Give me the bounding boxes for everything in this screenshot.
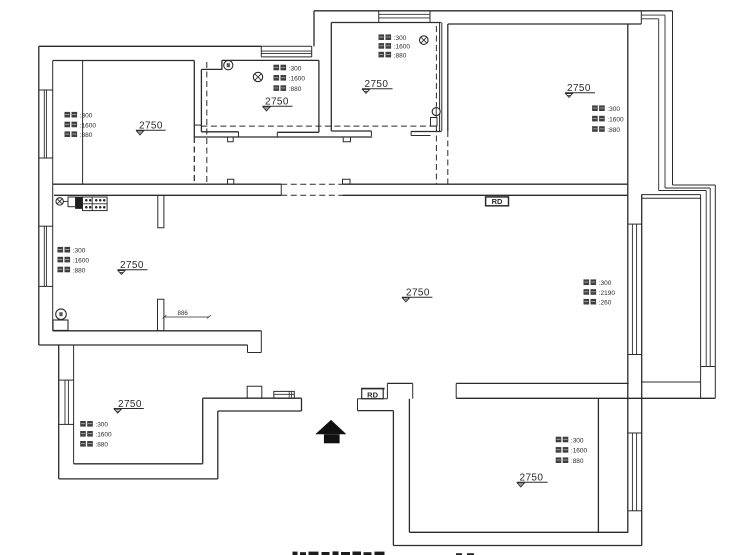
svg-text::880: :880: [80, 132, 93, 139]
svg-text:RD: RD: [492, 197, 503, 206]
svg-text::880: :880: [73, 267, 86, 274]
svg-text::300: :300: [80, 113, 93, 120]
svg-text::300: :300: [607, 106, 620, 113]
svg-text::1600: :1600: [571, 448, 588, 455]
svg-text::300: :300: [394, 35, 407, 42]
svg-text::2190: :2190: [599, 290, 616, 297]
svg-text::300: :300: [599, 280, 612, 287]
svg-text::880: :880: [95, 442, 108, 449]
svg-text::880: :880: [607, 127, 620, 134]
svg-text::1600: :1600: [289, 76, 306, 83]
svg-text:886: 886: [178, 310, 189, 317]
svg-text::300: :300: [95, 422, 108, 429]
svg-text::880: :880: [571, 458, 584, 465]
svg-text::1600: :1600: [80, 122, 97, 129]
svg-text::300: :300: [289, 65, 302, 72]
svg-text::1600: :1600: [73, 257, 90, 264]
svg-text::300: :300: [571, 437, 584, 444]
svg-text::1600: :1600: [394, 44, 411, 51]
svg-text::260: :260: [599, 300, 612, 307]
svg-text:RD: RD: [367, 390, 378, 399]
svg-text::880: :880: [394, 52, 407, 59]
svg-text::300: :300: [73, 248, 86, 255]
svg-text::1600: :1600: [607, 116, 624, 123]
svg-text::880: :880: [289, 86, 302, 93]
svg-text::1600: :1600: [95, 432, 112, 439]
